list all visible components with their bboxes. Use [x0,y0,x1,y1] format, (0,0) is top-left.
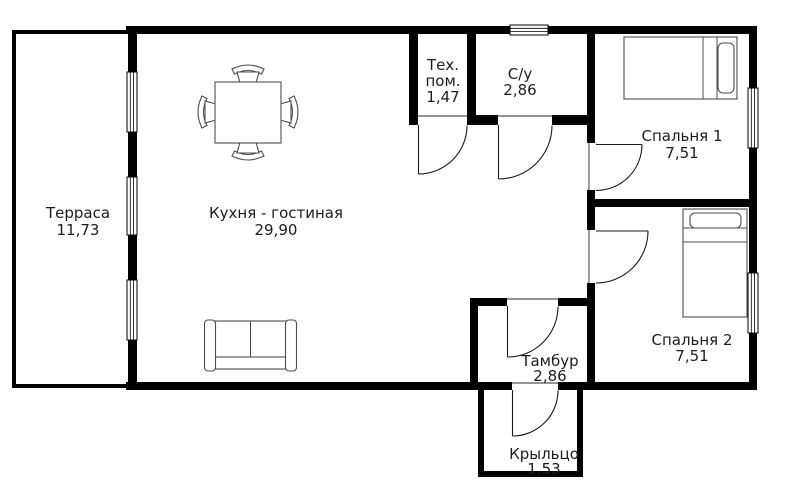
house-right-wall [749,26,757,390]
room-label-kitchen-living: Кухня - гостиная [209,204,343,222]
door-porch-icon [512,383,558,436]
bathroom-bottom-wall-a [476,115,498,125]
terrace-bottom-wall [12,384,137,388]
room-area-bedroom1: 7,51 [665,144,698,162]
door-techroom-icon [418,116,467,174]
room-area-terrace: 11,73 [57,221,100,239]
bedroom-wall-bottom [587,283,595,382]
dining-table [215,82,281,143]
chair-right-icon [280,96,298,128]
porch-left-wall [478,390,484,477]
window-bathroom-icon [510,25,548,35]
window-terrace-1-icon [127,72,137,132]
techroom-left-wall [409,26,418,125]
dining-table-with-chairs-icon [198,65,298,160]
room-area-bathroom: 2,86 [503,81,536,99]
window-terrace-2-icon [127,177,137,235]
porch-right-wall [577,390,583,477]
room-area-kitchen-living: 29,90 [255,221,298,239]
house-bottom-wall-left [126,382,512,390]
window-bedroom1-icon [748,88,758,148]
floor-plan: Терраса 11,73 Кухня - гостиная 29,90 Тех… [0,0,800,500]
room-label-bedroom1: Спальня 1 [641,127,722,145]
room-area-bedroom2: 7,51 [675,347,708,365]
bedroom-wall-top [587,26,595,143]
bedroom-wall-middle [587,190,595,230]
room-area-vestibule: 2,86 [533,367,566,385]
window-terrace-3-icon [127,280,137,340]
door-bathroom-icon [498,116,552,179]
door-bedroom2-icon [589,230,648,283]
room-area-tech: 1,47 [426,88,459,106]
window-bedroom2-icon [748,273,758,333]
door-bedroom1-icon [589,143,642,191]
bed2-single-bed-icon [683,209,747,317]
techroom-bathroom-wall [467,26,476,125]
bedrooms-divider-wall [587,199,757,207]
vestibule-top-wall-b [558,298,595,306]
chair-bottom-icon [232,142,264,160]
door-vestibule-icon [507,299,558,357]
bed1-single-bed-icon [624,37,737,99]
room-label-terrace: Терраса [45,204,110,222]
sofa-icon [205,320,297,371]
terrace-left-wall [12,30,16,388]
chair-top-icon [232,65,264,83]
house-bottom-wall-right [558,382,757,390]
vestibule-left-wall [470,298,478,390]
floor-plan-svg: Терраса 11,73 Кухня - гостиная 29,90 Тех… [0,0,800,500]
terrace-top-wall [12,30,137,34]
house-top-wall [126,26,757,34]
chair-left-icon [198,96,216,128]
room-area-porch: 1,53 [527,460,560,478]
